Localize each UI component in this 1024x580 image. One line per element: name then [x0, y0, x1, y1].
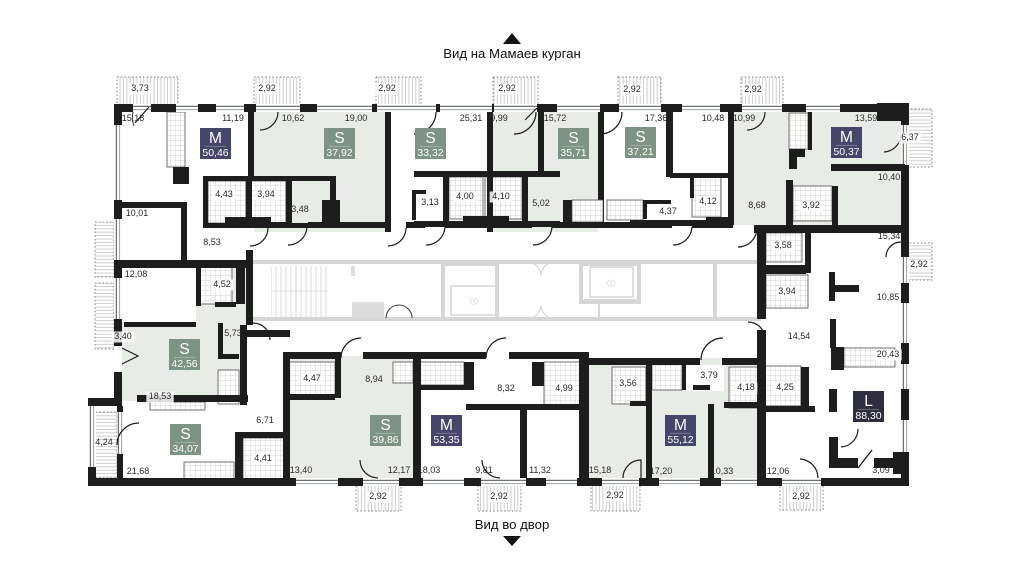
- svg-text:M: M: [674, 417, 687, 434]
- svg-text:13,40: 13,40: [290, 465, 313, 475]
- svg-text:37,21: 37,21: [627, 146, 653, 158]
- svg-text:6,71: 6,71: [256, 415, 274, 425]
- svg-text:10,33: 10,33: [711, 466, 734, 476]
- svg-text:3,48: 3,48: [291, 204, 309, 214]
- svg-text:15,72: 15,72: [544, 113, 567, 123]
- svg-text:12,08: 12,08: [125, 269, 148, 279]
- svg-text:4,99: 4,99: [555, 383, 573, 393]
- svg-text:42,56: 42,56: [171, 358, 197, 370]
- svg-text:Вид во двор: Вид во двор: [475, 517, 550, 532]
- svg-text:2,92: 2,92: [258, 83, 276, 93]
- svg-text:L: L: [864, 393, 873, 410]
- svg-text:4,24: 4,24: [95, 437, 113, 447]
- svg-text:9,81: 9,81: [475, 465, 493, 475]
- svg-text:11,32: 11,32: [529, 465, 551, 475]
- svg-text:4,52: 4,52: [213, 279, 231, 289]
- svg-text:50,46: 50,46: [202, 147, 228, 159]
- svg-text:3,92: 3,92: [802, 200, 820, 210]
- svg-text:5,73: 5,73: [224, 328, 242, 338]
- svg-text:15,18: 15,18: [589, 465, 612, 475]
- svg-text:21,68: 21,68: [127, 466, 150, 476]
- svg-text:2,92: 2,92: [910, 259, 928, 269]
- svg-text:53,35: 53,35: [433, 434, 459, 446]
- svg-text:35,71: 35,71: [560, 147, 586, 159]
- svg-text:25,31: 25,31: [460, 113, 483, 123]
- svg-text:20,43: 20,43: [877, 349, 900, 359]
- svg-text:4,41: 4,41: [254, 453, 272, 463]
- svg-text:S: S: [180, 426, 190, 443]
- svg-text:2,92: 2,92: [378, 83, 396, 93]
- svg-text:19,00: 19,00: [345, 113, 368, 123]
- svg-text:S: S: [568, 130, 578, 147]
- svg-text:3,79: 3,79: [700, 370, 718, 380]
- svg-text:2,92: 2,92: [744, 84, 762, 94]
- svg-text:〈|〉: 〈|〉: [465, 297, 483, 306]
- svg-text:10,01: 10,01: [126, 208, 149, 218]
- svg-text:S: S: [425, 130, 435, 147]
- svg-text:4,37: 4,37: [659, 206, 677, 216]
- svg-text:3,73: 3,73: [131, 83, 149, 93]
- svg-text:S: S: [179, 341, 189, 358]
- svg-text:2,92: 2,92: [792, 491, 810, 501]
- svg-text:3,56: 3,56: [619, 378, 637, 388]
- svg-text:55,12: 55,12: [667, 434, 693, 446]
- svg-text:S: S: [380, 417, 390, 434]
- svg-text:3,94: 3,94: [257, 189, 275, 199]
- svg-text:4,10: 4,10: [492, 191, 510, 201]
- svg-text:4,43: 4,43: [215, 189, 233, 199]
- svg-text:12,17: 12,17: [388, 465, 411, 475]
- svg-text:Вид на Мамаев курган: Вид на Мамаев курган: [443, 46, 581, 61]
- svg-text:8,32: 8,32: [497, 383, 515, 393]
- svg-text:S: S: [334, 130, 344, 147]
- svg-text:〈|〉: 〈|〉: [602, 279, 620, 288]
- svg-text:2,92: 2,92: [623, 84, 641, 94]
- svg-text:50,37: 50,37: [833, 146, 859, 158]
- svg-text:3,40: 3,40: [114, 331, 132, 341]
- svg-text:14,54: 14,54: [788, 331, 811, 341]
- svg-text:10,99: 10,99: [733, 113, 756, 123]
- svg-text:17,20: 17,20: [650, 466, 673, 476]
- svg-text:6,37: 6,37: [901, 132, 919, 142]
- svg-text:3,94: 3,94: [778, 286, 796, 296]
- svg-text:10,62: 10,62: [282, 113, 305, 123]
- svg-text:5,02: 5,02: [532, 198, 550, 208]
- svg-text:2,92: 2,92: [606, 490, 624, 500]
- svg-text:17,36: 17,36: [645, 113, 668, 123]
- svg-text:3,58: 3,58: [774, 240, 792, 250]
- svg-text:13,59: 13,59: [855, 113, 878, 123]
- svg-text:10,48: 10,48: [702, 113, 725, 123]
- svg-text:37,92: 37,92: [326, 147, 352, 159]
- svg-text:8,53: 8,53: [203, 237, 221, 247]
- svg-text:10,85: 10,85: [877, 292, 900, 302]
- svg-text:S: S: [635, 129, 645, 146]
- svg-text:9,99: 9,99: [490, 113, 508, 123]
- svg-text:4,25: 4,25: [776, 382, 794, 392]
- svg-text:M: M: [440, 417, 453, 434]
- svg-text:10,40: 10,40: [878, 172, 901, 182]
- svg-text:2,92: 2,92: [369, 491, 387, 501]
- svg-text:4,00: 4,00: [456, 191, 474, 201]
- svg-text:88,30: 88,30: [855, 410, 881, 422]
- svg-text:8,94: 8,94: [365, 374, 383, 384]
- svg-text:M: M: [209, 130, 222, 147]
- svg-text:2,92: 2,92: [490, 491, 508, 501]
- svg-text:12,06: 12,06: [767, 466, 790, 476]
- svg-text:2,92: 2,92: [498, 83, 516, 93]
- svg-text:3,13: 3,13: [421, 197, 439, 207]
- svg-text:4,47: 4,47: [303, 373, 321, 383]
- svg-text:39,86: 39,86: [372, 434, 398, 446]
- svg-text:M: M: [840, 129, 853, 146]
- svg-text:18,53: 18,53: [149, 391, 172, 401]
- svg-text:34,07: 34,07: [172, 443, 198, 455]
- svg-text:8,68: 8,68: [748, 200, 766, 210]
- svg-text:15,34: 15,34: [878, 231, 901, 241]
- svg-text:3,09: 3,09: [872, 465, 890, 475]
- svg-text:4,18: 4,18: [737, 382, 755, 392]
- svg-text:18,03: 18,03: [418, 465, 441, 475]
- svg-text:15,18: 15,18: [122, 113, 145, 123]
- svg-text:33,32: 33,32: [417, 147, 443, 159]
- svg-text:11,19: 11,19: [222, 113, 244, 123]
- svg-text:4,12: 4,12: [699, 196, 717, 206]
